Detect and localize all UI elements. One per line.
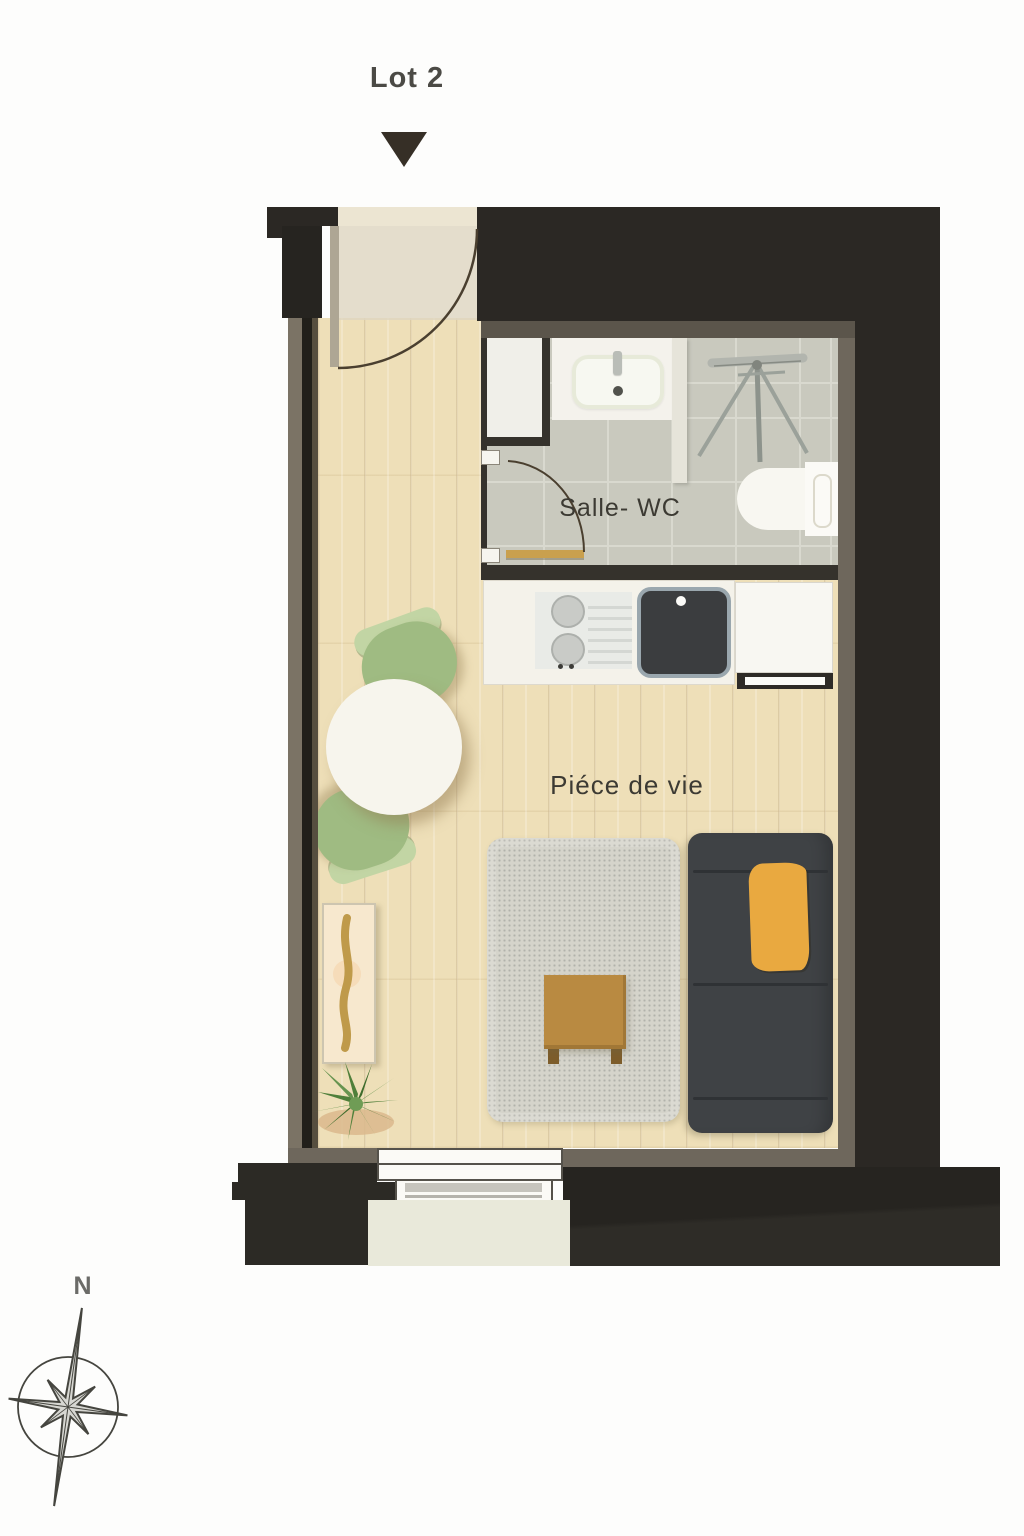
- bottom-wall-left-band2: [232, 1182, 395, 1200]
- bottom-wall-left-block: [245, 1200, 368, 1265]
- closet-partition-right: [542, 338, 550, 446]
- bathroom-label: Salle- WC: [510, 494, 730, 523]
- drain-icon: [613, 386, 623, 396]
- entry-door-swing-area: [338, 226, 477, 320]
- sofa-seam: [693, 983, 828, 986]
- wall-top-left-pillar: [282, 226, 322, 318]
- wall-top-right: [477, 207, 940, 321]
- bathroom-bottom-wall: [481, 565, 855, 580]
- wall-top-left-tab: [267, 226, 282, 238]
- entry-threshold: [338, 207, 477, 226]
- toilet-tank-slot: [813, 474, 832, 528]
- toilet-icon: [737, 468, 812, 530]
- left-wall-core: [302, 318, 312, 1150]
- bathroom-door-jamb-top: [481, 450, 500, 465]
- faucet-icon: [613, 351, 622, 375]
- burner-icon: [551, 595, 585, 628]
- bathroom-top-lining: [481, 321, 855, 338]
- living-room-label: Piéce de vie: [517, 770, 737, 801]
- floor-plan-page: Lot 2 Salle- WC Piéce de vie N: [0, 0, 1024, 1536]
- window-frame-midline: [377, 1163, 563, 1165]
- bottom-lining-right: [563, 1149, 855, 1167]
- bottom-wall-right-block: [563, 1167, 1000, 1266]
- kitchen-cabinet: [735, 582, 833, 673]
- left-wall-inner: [312, 318, 318, 1150]
- right-wall: [855, 321, 940, 1167]
- sofa: [688, 833, 833, 1133]
- bathroom-door-leaf: [506, 550, 584, 558]
- burner-icon: [551, 633, 585, 666]
- bottom-wall-left-band1: [238, 1163, 377, 1182]
- window-glazing-line: [405, 1195, 542, 1198]
- oven-handle: [745, 677, 825, 685]
- throw-blanket: [748, 862, 810, 972]
- lot-title: Lot 2: [307, 62, 507, 95]
- coffee-table: [544, 975, 626, 1049]
- bathroom-closet: [487, 338, 542, 437]
- shower-partition: [672, 338, 687, 483]
- right-wall-lining: [838, 338, 855, 1149]
- compass-rose-icon: [0, 1296, 170, 1526]
- wall-top-left-cap: [267, 207, 338, 226]
- sofa-seam: [693, 1097, 828, 1100]
- dining-table: [326, 679, 462, 815]
- drainer-lines: [588, 598, 632, 664]
- balcony: [368, 1200, 570, 1266]
- bathroom-door-jamb-bottom: [481, 548, 500, 563]
- window-glazing-pane: [405, 1183, 542, 1192]
- closet-partition-bottom: [487, 437, 550, 446]
- bottom-lining-left: [288, 1148, 377, 1164]
- entry-door-leaf: [330, 226, 339, 367]
- kitchen-faucet-icon: [676, 596, 686, 606]
- left-wall-outer: [288, 318, 302, 1150]
- cooktop-knob: [569, 664, 574, 669]
- cooktop-knob: [558, 664, 563, 669]
- sideboard-decor-dish: [333, 960, 361, 988]
- lot-pointer-icon: [381, 132, 427, 167]
